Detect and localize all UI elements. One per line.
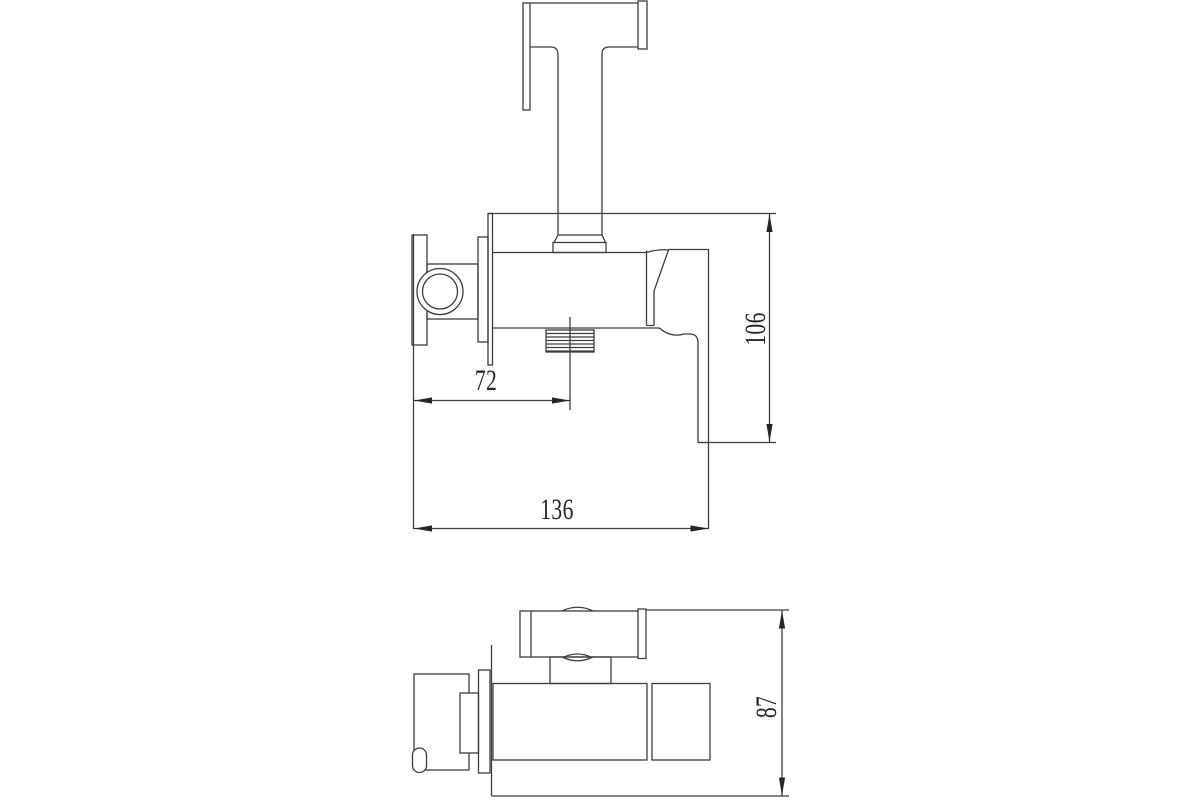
sprayer-end-cap-top-view: [638, 609, 646, 659]
wall-plate-inner: [478, 237, 488, 342]
wall-plate-front: [478, 214, 493, 366]
lever-inner-profile: [662, 330, 699, 443]
sprayer-face-strip: [523, 3, 530, 110]
inlet-connector-assembly: [412, 235, 478, 345]
arrow-72-left: [414, 397, 432, 403]
dimension-label-height: 106: [741, 312, 771, 345]
dimension-label-total-depth: 136: [540, 495, 573, 525]
wall-plate-top-view: [479, 670, 491, 773]
lever-handle: [647, 250, 709, 443]
dimension-lines-front: [414, 214, 773, 532]
extension-lines-front: [414, 214, 777, 530]
drawing-linework: [0, 0, 1200, 800]
holder-cap: [554, 235, 606, 243]
lever-neck-slant: [647, 250, 669, 326]
sprayer-top-view: [520, 607, 646, 683]
arrow-87-bottom: [779, 778, 785, 796]
lever-top-view: [652, 684, 710, 761]
arrow-72-right: [552, 397, 570, 403]
dimension-label-outlet-offset: 72: [475, 366, 497, 396]
holder-base: [553, 243, 606, 253]
sprayer-handle-right: [602, 47, 638, 235]
arrow-87-top: [779, 611, 785, 629]
sprayer-bar-top-view: [520, 611, 640, 657]
lever-neck-curve: [647, 250, 669, 253]
hand-shower-outline: [523, 1, 647, 235]
front-view-drawing: [412, 1, 776, 532]
sprayer-end-cap: [638, 1, 647, 49]
valve-connector-top-view: [460, 693, 479, 753]
inlet-assembly-top-view: [413, 670, 491, 773]
wall-plate-strip: [488, 214, 493, 366]
arrow-106-top: [766, 214, 772, 232]
mixer-body: [493, 235, 662, 330]
arrow-136-right: [691, 525, 709, 531]
dimension-label-depth: 87: [752, 696, 782, 718]
technical-drawing-canvas: 72 106 136 87: [0, 0, 1200, 800]
top-view-drawing: [413, 607, 790, 796]
inlet-circle-outer: [417, 269, 463, 315]
valve-tab-capsule: [413, 748, 427, 773]
sprayer-handle-left: [530, 47, 558, 235]
mixer-body-top-view: [493, 684, 647, 761]
body-top-view: [493, 684, 710, 761]
lever-outer-profile: [669, 250, 709, 443]
arrow-106-bottom: [766, 424, 772, 442]
arrow-136-left: [414, 525, 432, 531]
